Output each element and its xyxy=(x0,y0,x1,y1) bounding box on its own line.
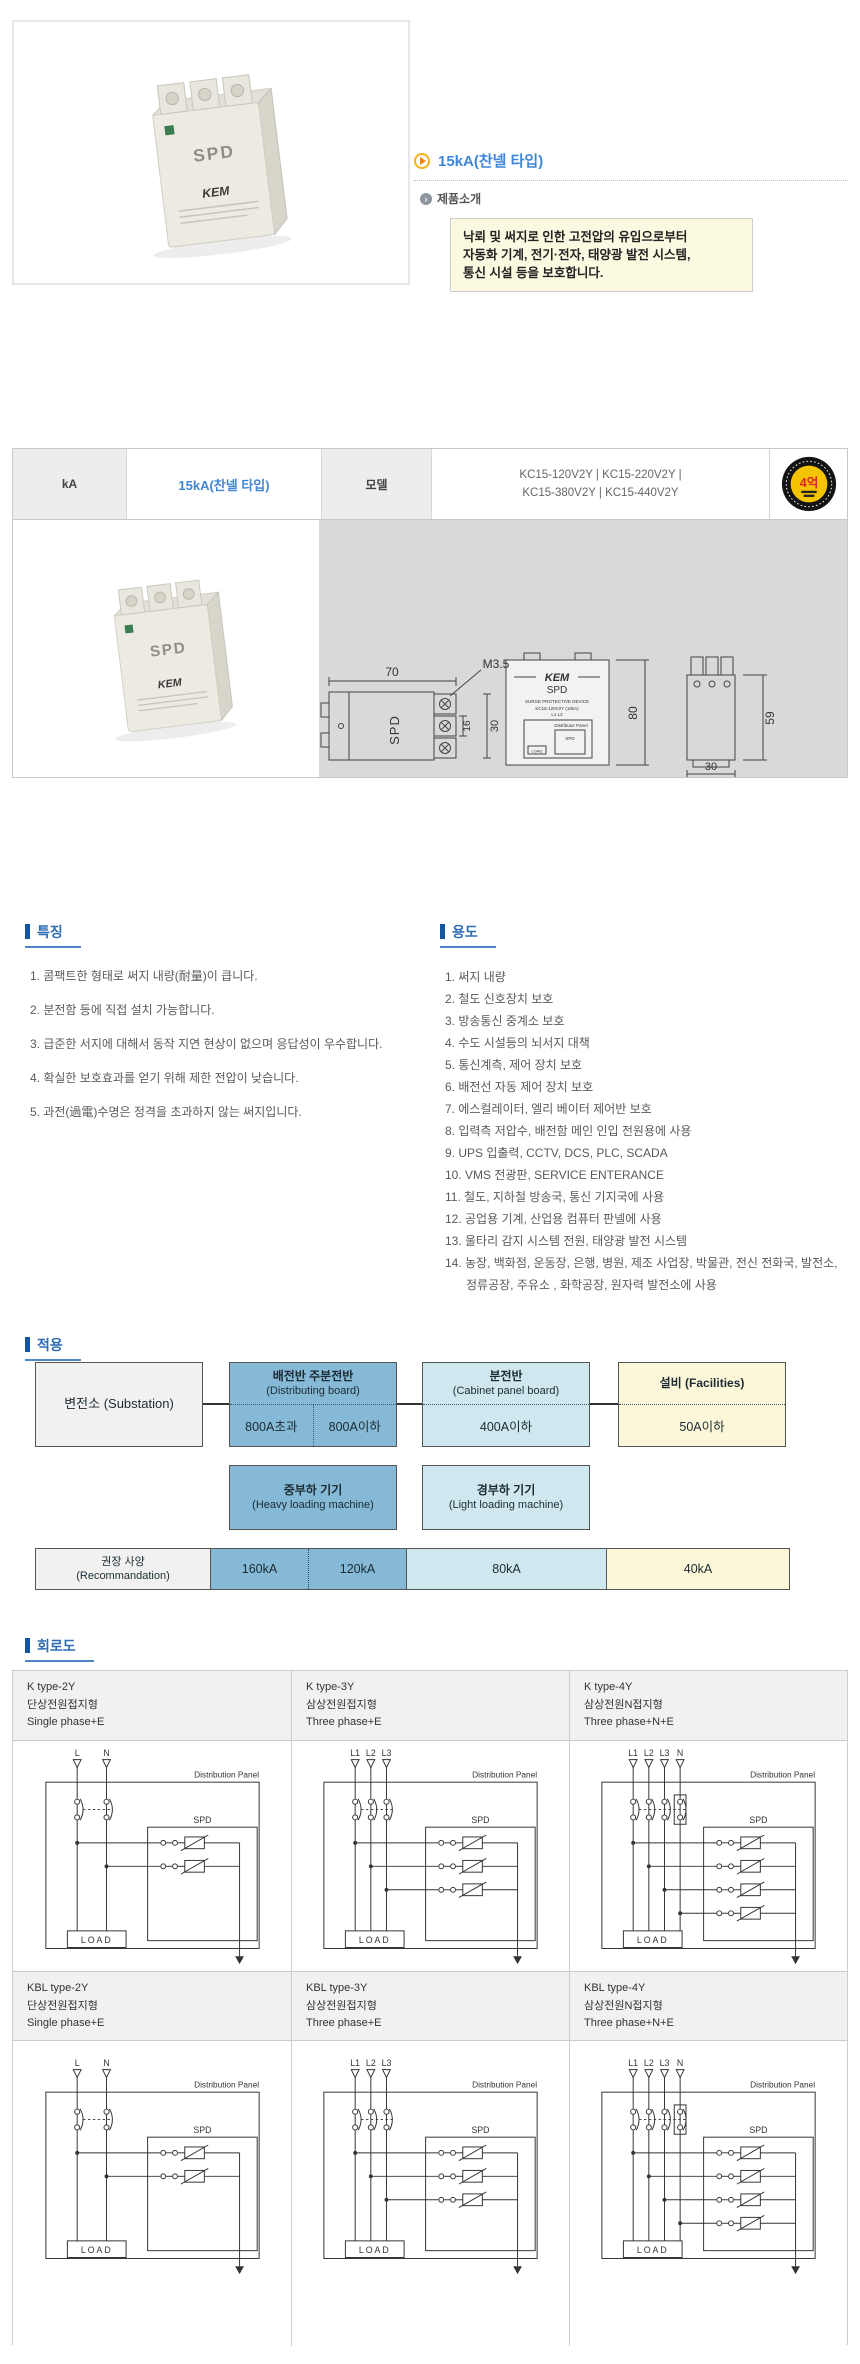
section-title-features: 특징 xyxy=(25,922,81,948)
circuit-header: KBL type-3Y삼상전원접지형Three phase+E xyxy=(291,1971,569,2041)
circuit-cell: Distribution PanelL1L2L3NSPDLOAD xyxy=(569,1741,847,1971)
flow-connector xyxy=(397,1403,422,1405)
intro-line: 자동화 기계, 전기·전자, 태양광 발전 시스템, xyxy=(463,246,740,264)
svg-text:N: N xyxy=(103,1748,109,1758)
intro-line: 통신 시설 등을 보호합니다. xyxy=(463,264,740,282)
use-item: 2. 철도 신호장치 보호 xyxy=(445,988,843,1010)
svg-text:Distribution Panel: Distribution Panel xyxy=(194,1769,259,1779)
svg-text:LOAD: LOAD xyxy=(637,1935,669,1945)
svg-text:LOAD: LOAD xyxy=(637,2245,669,2255)
use-item: 10. VMS 전광판, SERVICE ENTERANCE xyxy=(445,1164,843,1186)
svg-text:L2: L2 xyxy=(366,2058,376,2068)
flow-facilities: 설비 (Facilities) 50A이하 xyxy=(618,1362,786,1447)
spec-model-label: 모델 xyxy=(321,449,431,519)
svg-text:N: N xyxy=(677,1748,683,1758)
features-list: 1. 콤팩트한 형태로 써지 내량(耐量)이 큽니다. 2. 분전함 등에 직접… xyxy=(30,968,422,1138)
circuit-diagram: Distribution PanelL1L2L3NSPDLOAD xyxy=(586,1745,831,1970)
svg-text:4억: 4억 xyxy=(799,476,818,490)
svg-text:L1: L1 xyxy=(350,2058,360,2068)
svg-text:SPD: SPD xyxy=(565,736,575,741)
product-intro-box: 낙뢰 및 써지로 인한 고전압의 유입으로부터 자동화 기계, 전기·전자, 태… xyxy=(450,218,753,292)
feature-item: 3. 급준한 서지에 대해서 동작 지연 현상이 없으며 응답성이 우수합니다. xyxy=(30,1036,422,1053)
circuit-diagram: Distribution PanelL1L2L3SPDLOAD xyxy=(308,2055,553,2280)
product-intro-label: › 제품소개 xyxy=(420,190,481,207)
svg-text:N: N xyxy=(103,2058,109,2068)
svg-text:L3: L3 xyxy=(382,1748,392,1758)
svg-text:Distribution Panel: Distribution Panel xyxy=(194,2079,259,2089)
title-bar-icon xyxy=(25,1638,30,1653)
svg-text:L2: L2 xyxy=(644,1748,654,1758)
dim-30-depth: 30 xyxy=(705,761,717,773)
use-item: 13. 울타리 감지 시스템 전원, 태양광 발전 시스템 xyxy=(445,1230,843,1252)
dim-59: 59 xyxy=(763,711,777,725)
svg-text:L1: L1 xyxy=(350,1748,360,1758)
feature-item: 4. 확실한 보호효과를 얻기 위해 제한 전압이 낮습니다. xyxy=(30,1070,422,1087)
insurance-badge: 4억 xyxy=(769,449,847,519)
flow-substation: 변전소 (Substation) xyxy=(35,1362,203,1447)
svg-text:SPD: SPD xyxy=(193,1815,211,1825)
circuit-diagram: Distribution PanelLNSPDLOAD xyxy=(30,1745,275,1970)
product-page: 15kA(찬넬 타입) › 제품소개 낙뢰 및 써지로 인한 고전압의 유입으로… xyxy=(0,0,860,2364)
light-loading-box: 경부하 기기 (Light loading machine) xyxy=(422,1465,590,1530)
svg-text:L3: L3 xyxy=(660,1748,670,1758)
dimension-drawing: 70 M3.5 16 30 80 59 30 SPD KEM SPD SURGE… xyxy=(319,520,847,778)
use-item: 4. 수도 시설등의 뇌서지 대책 xyxy=(445,1032,843,1054)
svg-text:LOAD: LOAD xyxy=(359,1935,391,1945)
product-photo xyxy=(109,45,314,260)
circuit-header: K type-2Y단상전원접지형Single phase+E xyxy=(13,1671,291,1741)
svg-text:L1: L1 xyxy=(628,2058,638,2068)
dim-30-top: 30 xyxy=(489,719,501,731)
use-item: 7. 에스컬레이터, 엘리 베이터 제어반 보호 xyxy=(445,1098,843,1120)
use-item: 11. 철도, 지하철 방송국, 통신 기지국에 사용 xyxy=(445,1186,843,1208)
svg-text:Distributor Panel: Distributor Panel xyxy=(554,723,587,728)
flow-cabinet-panel: 분전반 (Cabinet panel board) 400A이하 xyxy=(422,1362,590,1447)
circuit-header: KBL type-2Y단상전원접지형Single phase+E xyxy=(13,1971,291,2041)
flow-connector xyxy=(203,1403,229,1405)
play-icon xyxy=(414,153,430,169)
title-bar-icon xyxy=(440,924,445,939)
dotted-separator xyxy=(414,180,848,181)
dim-16: 16 xyxy=(462,720,473,732)
circuit-cell: Distribution PanelLNSPDLOAD xyxy=(13,2041,291,2346)
svg-text:LOAD: LOAD xyxy=(80,2245,112,2255)
svg-text:Distribution Panel: Distribution Panel xyxy=(472,1769,537,1779)
svg-text:L2: L2 xyxy=(644,2058,654,2068)
svg-text:KC15-120V2Y (15kA): KC15-120V2Y (15kA) xyxy=(535,706,579,711)
use-item: 9. UPS 입출력, CCTV, DCS, PLC, SCADA xyxy=(445,1142,843,1164)
circuit-header: K type-4Y삼상전원N접지형Three phase+N+E xyxy=(569,1671,847,1741)
dim-70: 70 xyxy=(385,665,399,679)
svg-text:SPD: SPD xyxy=(193,2125,211,2135)
circuit-grid: K type-2Y단상전원접지형Single phase+E K type-3Y… xyxy=(12,1670,848,2345)
svg-text:SPD: SPD xyxy=(749,2125,767,2135)
svg-text:L3: L3 xyxy=(382,2058,392,2068)
reco-80: 80kA xyxy=(406,1549,606,1589)
product-photo xyxy=(76,554,256,743)
feature-item: 1. 콤팩트한 형태로 써지 내량(耐量)이 큽니다. xyxy=(30,968,422,985)
technical-drawing-area: 70 M3.5 16 30 80 59 30 SPD KEM SPD SURGE… xyxy=(319,520,847,777)
device-spd-label: SPD xyxy=(387,715,402,745)
circuit-cell: Distribution PanelL1L2L3NSPDLOAD xyxy=(569,2041,847,2346)
circuit-cell: Distribution PanelL1L2L3SPDLOAD xyxy=(291,2041,569,2346)
svg-text:LOAD: LOAD xyxy=(532,748,543,753)
title-bar-icon xyxy=(25,924,30,939)
recommendation-label: 권장 사양 (Recommandation) xyxy=(36,1549,211,1589)
feature-item: 5. 과전(過電)수명은 정격을 초과하지 않는 써지입니다. xyxy=(30,1104,422,1121)
section-title-circuits: 회로도 xyxy=(25,1636,94,1662)
recommendation-bar: 권장 사양 (Recommandation) 160kA 120kA 80kA … xyxy=(35,1548,790,1590)
svg-text:L1: L1 xyxy=(628,1748,638,1758)
heavy-loading-box: 중부하 기기 (Heavy loading machine) xyxy=(229,1465,397,1530)
product-photo-small xyxy=(13,520,319,777)
spec-table: kA 15kA(찬넬 타입) 모델 KC15-120V2Y | KC15-220… xyxy=(12,448,848,520)
svg-text:LOAD: LOAD xyxy=(359,2245,391,2255)
bullet-circle-icon: › xyxy=(420,193,432,205)
device-spd: SPD xyxy=(547,685,568,696)
use-item: 5. 통신계측, 제어 장치 보호 xyxy=(445,1054,843,1076)
section-title-uses: 용도 xyxy=(440,922,496,948)
dim-m3-5: M3.5 xyxy=(483,657,510,671)
svg-text:SPD: SPD xyxy=(471,1815,489,1825)
reco-120: 120kA xyxy=(308,1549,406,1589)
section-title-application: 적용 xyxy=(25,1335,81,1361)
svg-text:N: N xyxy=(677,2058,683,2068)
use-item: 8. 입력측 저압수, 배전함 메인 인입 전원용에 사용 xyxy=(445,1120,843,1142)
use-item: 12. 공업용 기계, 산업용 컴퓨터 판넬에 사용 xyxy=(445,1208,843,1230)
feature-item: 2. 분전함 등에 직접 설치 가능합니다. xyxy=(30,1002,422,1019)
circuit-cell: Distribution PanelLNSPDLOAD xyxy=(13,1741,291,1971)
page-title: 15kA(찬넬 타입) xyxy=(438,150,543,171)
circuit-diagram: Distribution PanelL1L2L3NSPDLOAD xyxy=(586,2055,831,2280)
uses-list: 1. 써지 내량 2. 철도 신호장치 보호 3. 방송통신 중계소 보호 4.… xyxy=(445,966,843,1296)
svg-text:Distribution Panel: Distribution Panel xyxy=(750,2079,815,2089)
spec-ka-value: 15kA(찬넬 타입) xyxy=(126,449,321,519)
svg-text:SURGE PROTECTIVE DEVICE: SURGE PROTECTIVE DEVICE xyxy=(525,699,589,704)
spec-ka-label: kA xyxy=(13,449,126,519)
circuit-header: KBL type-4Y삼상전원N접지형Three phase+N+E xyxy=(569,1971,847,2041)
title-bar-icon xyxy=(25,1337,30,1352)
svg-text:LOAD: LOAD xyxy=(80,1935,112,1945)
spec-model-value: KC15-120V2Y | KC15-220V2Y | KC15-380V2Y … xyxy=(431,449,769,519)
reco-160: 160kA xyxy=(211,1549,308,1589)
dimension-row: 70 M3.5 16 30 80 59 30 SPD KEM SPD SURGE… xyxy=(12,520,848,778)
circuit-diagram: Distribution PanelL1L2L3SPDLOAD xyxy=(308,1745,553,1970)
reco-40: 40kA xyxy=(606,1549,789,1589)
title-row: 15kA(찬넬 타입) xyxy=(414,150,543,171)
svg-text:Distribution Panel: Distribution Panel xyxy=(750,1769,815,1779)
svg-text:SPD: SPD xyxy=(471,2125,489,2135)
use-item: 1. 써지 내량 xyxy=(445,966,843,988)
circuit-diagram: Distribution PanelLNSPDLOAD xyxy=(30,2055,275,2280)
badge-icon: 4억 xyxy=(780,455,838,513)
svg-text:L: L xyxy=(74,1748,79,1758)
dim-80: 80 xyxy=(626,706,640,720)
flow-distributing-board: 배전반 주분전반 (Distributing board) 800A초과800A… xyxy=(229,1362,397,1447)
use-item: 3. 방송통신 중계소 보호 xyxy=(445,1010,843,1032)
svg-text:L: L xyxy=(74,2058,79,2068)
flow-connector xyxy=(590,1403,618,1405)
svg-text:L3: L3 xyxy=(660,2058,670,2068)
svg-text:L1 L2: L1 L2 xyxy=(551,712,563,717)
intro-line: 낙뢰 및 써지로 인한 고전압의 유입으로부터 xyxy=(463,228,740,246)
circuit-header: K type-3Y삼상전원접지형Three phase+E xyxy=(291,1671,569,1741)
svg-text:SPD: SPD xyxy=(749,1815,767,1825)
use-item: 14. 농장, 백화점, 운동장, 은행, 병원, 제조 사업장, 박물관, 전… xyxy=(445,1252,843,1296)
svg-text:L2: L2 xyxy=(366,1748,376,1758)
product-photo-box xyxy=(12,20,410,285)
use-item: 6. 배전선 자동 제어 장치 보호 xyxy=(445,1076,843,1098)
circuit-cell: Distribution PanelL1L2L3SPDLOAD xyxy=(291,1741,569,1971)
device-brand: KEM xyxy=(545,672,570,684)
svg-text:Distribution Panel: Distribution Panel xyxy=(472,2079,537,2089)
